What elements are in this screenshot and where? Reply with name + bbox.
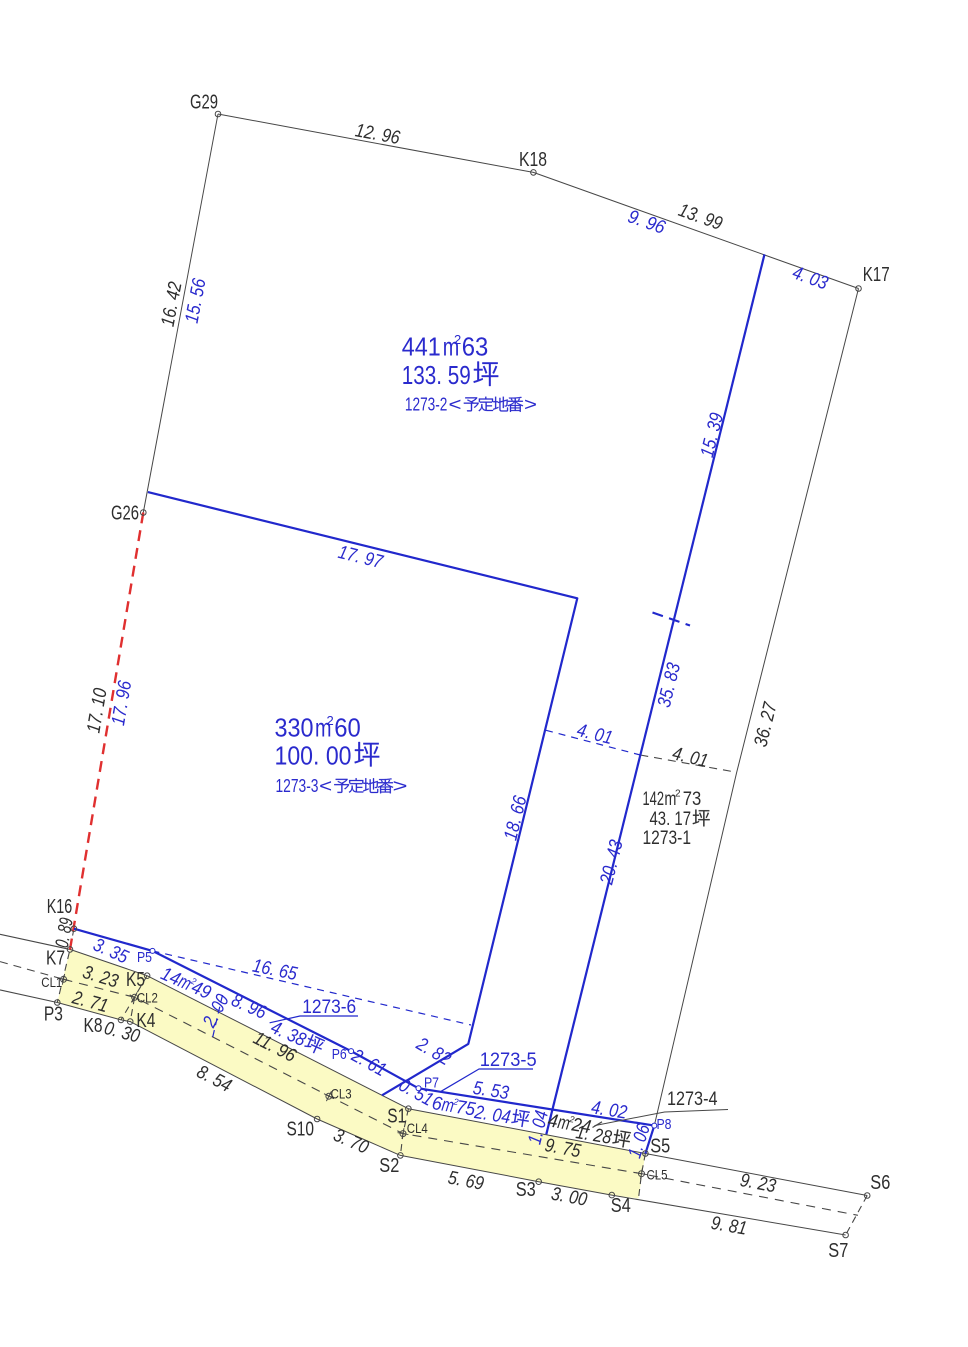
svg-text:K8: K8 <box>84 1015 103 1037</box>
svg-text:12. 96: 12. 96 <box>353 120 401 149</box>
svg-text:35. 83: 35. 83 <box>654 660 685 709</box>
svg-text:S2: S2 <box>379 1155 399 1177</box>
svg-text:CL3: CL3 <box>331 1086 352 1102</box>
svg-text:4. 02: 4. 02 <box>590 1097 629 1123</box>
svg-text:2: 2 <box>454 332 461 347</box>
svg-text:0. 89: 0. 89 <box>52 916 78 949</box>
svg-text:1273-3: 1273-3 <box>276 776 319 796</box>
svg-text:K7: K7 <box>46 948 65 970</box>
svg-text:>: > <box>393 776 408 796</box>
svg-text:133. 59: 133. 59 <box>402 360 471 390</box>
svg-text:5. 53: 5. 53 <box>471 1078 510 1104</box>
svg-text:P8: P8 <box>657 1116 672 1133</box>
svg-text:S5: S5 <box>650 1136 670 1158</box>
svg-text:1273-4: 1273-4 <box>667 1089 718 1110</box>
svg-text:60: 60 <box>334 713 361 743</box>
svg-text:43. 17: 43. 17 <box>650 809 692 830</box>
svg-text:CL1: CL1 <box>41 974 62 990</box>
svg-text:100. 00: 100. 00 <box>275 741 352 771</box>
svg-text:CL2: CL2 <box>137 990 158 1006</box>
svg-text:73: 73 <box>683 789 702 810</box>
svg-text:G26: G26 <box>111 503 139 525</box>
svg-text:16. 65: 16. 65 <box>251 956 300 986</box>
svg-text:5. 69: 5. 69 <box>446 1167 486 1194</box>
svg-text:K5: K5 <box>126 969 145 991</box>
svg-text:S4: S4 <box>611 1195 631 1217</box>
svg-text:P5: P5 <box>137 949 152 966</box>
svg-text:CL4: CL4 <box>407 1120 428 1136</box>
svg-text:330: 330 <box>275 713 314 743</box>
svg-text:4. 01: 4. 01 <box>575 720 615 749</box>
svg-text:2: 2 <box>327 713 334 728</box>
svg-text:8. 96: 8. 96 <box>228 990 270 1024</box>
svg-text:18. 66: 18. 66 <box>500 793 531 842</box>
svg-text:1273-6: 1273-6 <box>302 997 356 1018</box>
svg-text:75: 75 <box>455 1097 477 1121</box>
svg-text:63: 63 <box>462 332 489 362</box>
svg-text:G29: G29 <box>190 92 218 114</box>
svg-text:1273-2: 1273-2 <box>405 395 448 415</box>
svg-text:<: < <box>449 395 462 415</box>
svg-text:K16: K16 <box>47 896 72 918</box>
svg-text:13. 99: 13. 99 <box>676 200 726 235</box>
svg-text:20. 43: 20. 43 <box>596 838 627 888</box>
svg-text:>: > <box>524 395 537 415</box>
svg-text:CL5: CL5 <box>647 1167 668 1183</box>
svg-text:S7: S7 <box>828 1240 848 1262</box>
svg-text:15. 39: 15. 39 <box>697 410 728 459</box>
svg-text:4. 01: 4. 01 <box>670 743 710 772</box>
svg-text:S3: S3 <box>516 1179 536 1201</box>
svg-text:9. 96: 9. 96 <box>625 206 668 239</box>
svg-text:P3: P3 <box>44 1004 63 1026</box>
svg-text:1273-1: 1273-1 <box>643 828 692 849</box>
svg-text:17. 96: 17. 96 <box>108 679 136 727</box>
svg-text:K18: K18 <box>519 149 547 171</box>
svg-text:K17: K17 <box>863 264 890 286</box>
svg-text:<: < <box>319 776 332 796</box>
svg-text:36. 27: 36. 27 <box>751 699 782 749</box>
svg-text:4. 03: 4. 03 <box>790 262 831 294</box>
svg-text:S1: S1 <box>387 1106 406 1128</box>
svg-text:2: 2 <box>675 789 681 800</box>
svg-text:P6: P6 <box>332 1046 347 1063</box>
svg-text:142: 142 <box>643 789 665 810</box>
svg-text:17. 97: 17. 97 <box>336 542 386 574</box>
svg-text:S6: S6 <box>870 1172 890 1194</box>
svg-text:S10: S10 <box>287 1119 315 1141</box>
svg-text:24: 24 <box>569 1114 592 1138</box>
svg-text:1273-5: 1273-5 <box>480 1050 537 1071</box>
svg-text:441: 441 <box>402 332 441 362</box>
